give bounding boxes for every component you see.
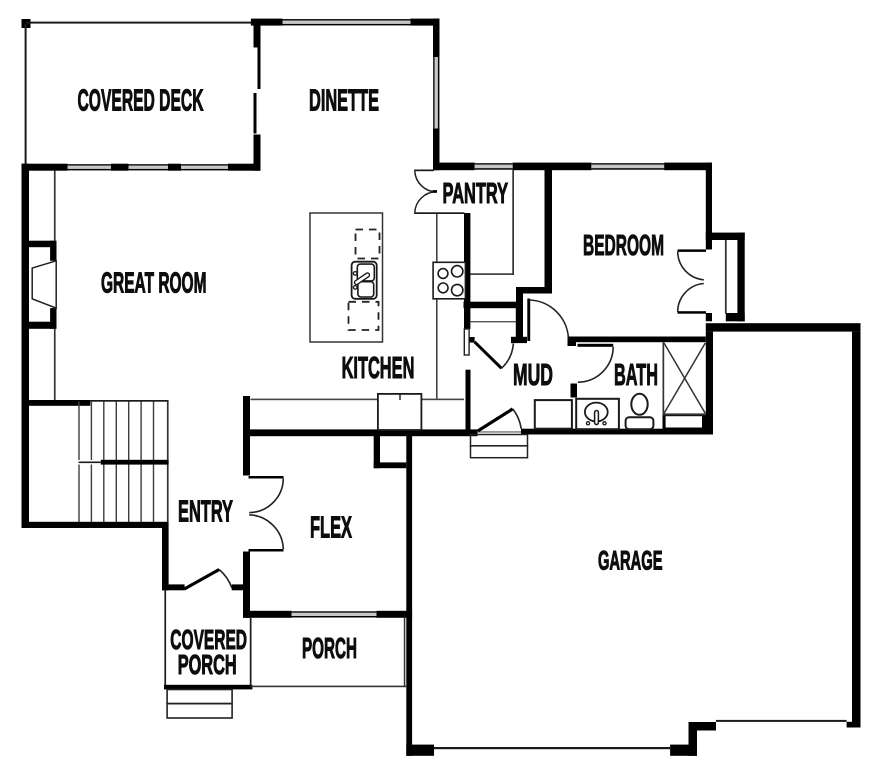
svg-text:BATH: BATH bbox=[614, 357, 658, 392]
svg-text:PANTRY: PANTRY bbox=[443, 178, 509, 210]
svg-text:KITCHEN: KITCHEN bbox=[342, 350, 415, 385]
svg-text:FLEX: FLEX bbox=[310, 510, 352, 545]
svg-text:DINETTE: DINETTE bbox=[309, 83, 379, 118]
svg-text:PORCH: PORCH bbox=[178, 649, 237, 680]
svg-text:GREAT ROOM: GREAT ROOM bbox=[101, 267, 207, 299]
svg-text:BEDROOM: BEDROOM bbox=[583, 230, 664, 262]
svg-text:ENTRY: ENTRY bbox=[178, 494, 233, 529]
svg-text:COVERED DECK: COVERED DECK bbox=[78, 83, 204, 118]
svg-text:MUD: MUD bbox=[513, 357, 553, 392]
svg-text:GARAGE: GARAGE bbox=[598, 546, 663, 576]
svg-text:PORCH: PORCH bbox=[302, 633, 357, 665]
